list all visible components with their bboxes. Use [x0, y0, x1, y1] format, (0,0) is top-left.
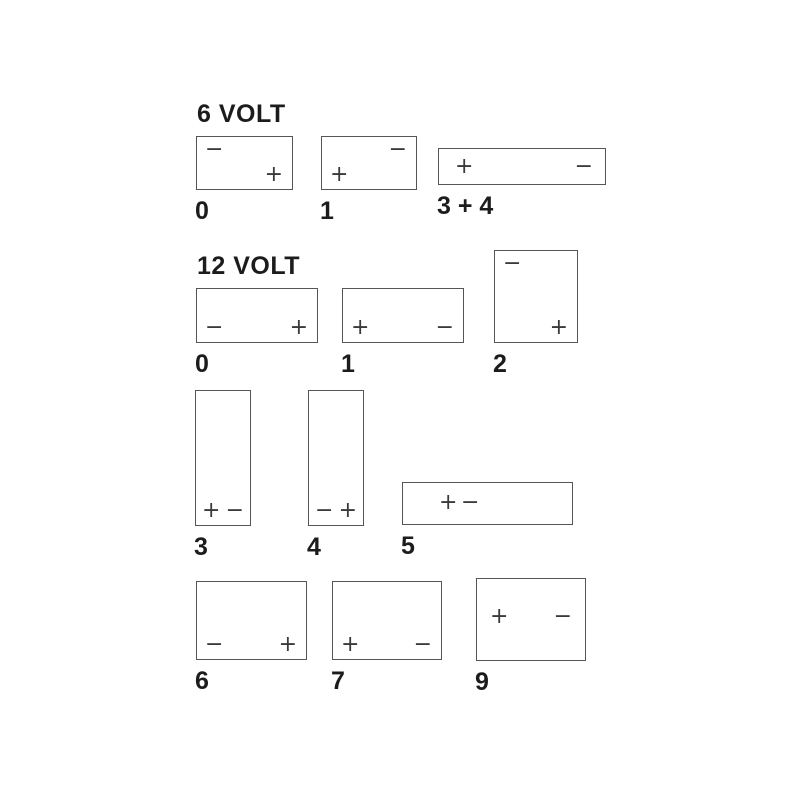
battery-label: 0: [195, 197, 209, 226]
battery-box-12v-6: −+: [196, 581, 307, 660]
terminal-negative-icon: −: [205, 138, 223, 162]
terminal-positive-icon: +: [265, 163, 283, 187]
battery-label: 2: [493, 350, 507, 379]
battery-label: 3: [194, 533, 208, 562]
battery-label: 0: [195, 350, 209, 379]
terminal-negative-icon: −: [461, 491, 479, 515]
battery-box-6v-1: −+: [321, 136, 417, 190]
section-title-12-volt: 12 VOLT: [197, 252, 300, 281]
battery-label: 9: [475, 668, 489, 697]
battery-label: 7: [331, 667, 345, 696]
terminal-negative-icon: −: [554, 605, 572, 629]
battery-box-12v-9: +−: [476, 578, 586, 661]
terminal-negative-icon: −: [205, 316, 223, 340]
battery-box-6v-0: −+: [196, 136, 293, 190]
battery-label: 1: [341, 350, 355, 379]
terminal-positive-icon: +: [550, 316, 568, 340]
terminal-negative-icon: −: [315, 499, 333, 523]
battery-box-12v-1: +−: [342, 288, 464, 343]
battery-box-12v-5: +−: [402, 482, 573, 525]
terminal-positive-icon: +: [439, 491, 457, 515]
battery-label: 1: [320, 197, 334, 226]
terminal-positive-icon: +: [490, 605, 508, 629]
terminal-negative-icon: −: [575, 155, 593, 179]
battery-box-6v-3+4: +−: [438, 148, 606, 185]
battery-box-12v-0: −+: [196, 288, 318, 343]
terminal-positive-icon: +: [455, 155, 473, 179]
battery-box-12v-3: +−: [195, 390, 251, 526]
section-title-6-volt: 6 VOLT: [197, 100, 286, 129]
terminal-positive-icon: +: [330, 163, 348, 187]
battery-terminal-layout-diagram: 6 VOLT−+0−+1+−3 + 412 VOLT−+0+−1−+2+−3−+…: [0, 0, 800, 800]
terminal-positive-icon: +: [290, 316, 308, 340]
terminal-negative-icon: −: [226, 499, 244, 523]
battery-box-12v-7: +−: [332, 581, 442, 660]
battery-label: 5: [401, 532, 415, 561]
terminal-positive-icon: +: [339, 499, 357, 523]
terminal-negative-icon: −: [436, 316, 454, 340]
terminal-positive-icon: +: [202, 499, 220, 523]
terminal-negative-icon: −: [503, 252, 521, 276]
battery-box-12v-4: −+: [308, 390, 364, 526]
terminal-positive-icon: +: [341, 633, 359, 657]
terminal-negative-icon: −: [205, 633, 223, 657]
battery-label: 3 + 4: [437, 192, 493, 221]
terminal-negative-icon: −: [389, 138, 407, 162]
battery-label: 4: [307, 533, 321, 562]
terminal-positive-icon: +: [279, 633, 297, 657]
battery-label: 6: [195, 667, 209, 696]
battery-box-12v-2: −+: [494, 250, 578, 343]
terminal-negative-icon: −: [414, 633, 432, 657]
terminal-positive-icon: +: [351, 316, 369, 340]
